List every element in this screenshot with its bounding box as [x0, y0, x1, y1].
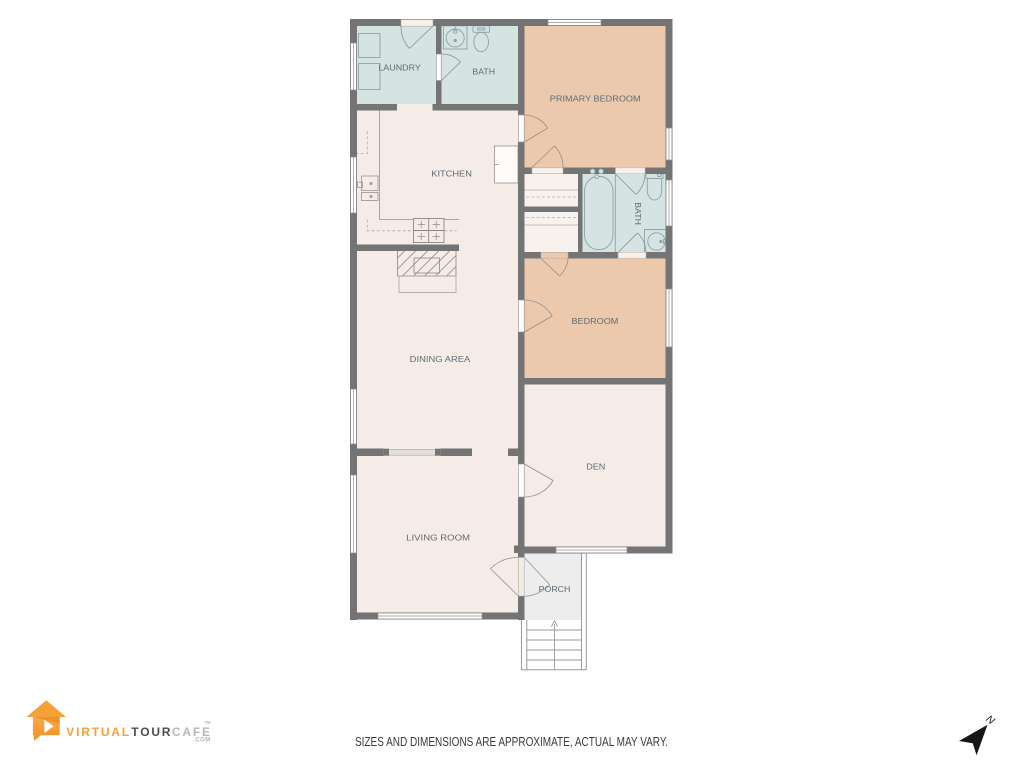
svg-text:KITCHEN: KITCHEN — [431, 170, 472, 179]
svg-text:PORCH: PORCH — [539, 585, 571, 594]
svg-text:BATH: BATH — [472, 67, 495, 76]
svg-text:PRIMARY BEDROOM: PRIMARY BEDROOM — [550, 95, 641, 104]
svg-text:N: N — [983, 713, 997, 727]
svg-text:VIRTUAL: VIRTUAL — [66, 725, 131, 739]
svg-text:TOUR: TOUR — [131, 725, 172, 739]
svg-text:SIZES AND DIMENSIONS ARE APPRO: SIZES AND DIMENSIONS ARE APPROXIMATE, AC… — [355, 734, 668, 749]
svg-text:LIVING ROOM: LIVING ROOM — [406, 534, 470, 543]
svg-text:BEDROOM: BEDROOM — [572, 317, 619, 326]
svg-text:.COM: .COM — [193, 737, 211, 743]
svg-text:LAUNDRY: LAUNDRY — [378, 63, 421, 72]
svg-text:BATH: BATH — [633, 202, 642, 225]
svg-text:DINING AREA: DINING AREA — [410, 355, 471, 364]
svg-text:TM: TM — [205, 720, 212, 725]
svg-text:DEN: DEN — [586, 462, 605, 471]
